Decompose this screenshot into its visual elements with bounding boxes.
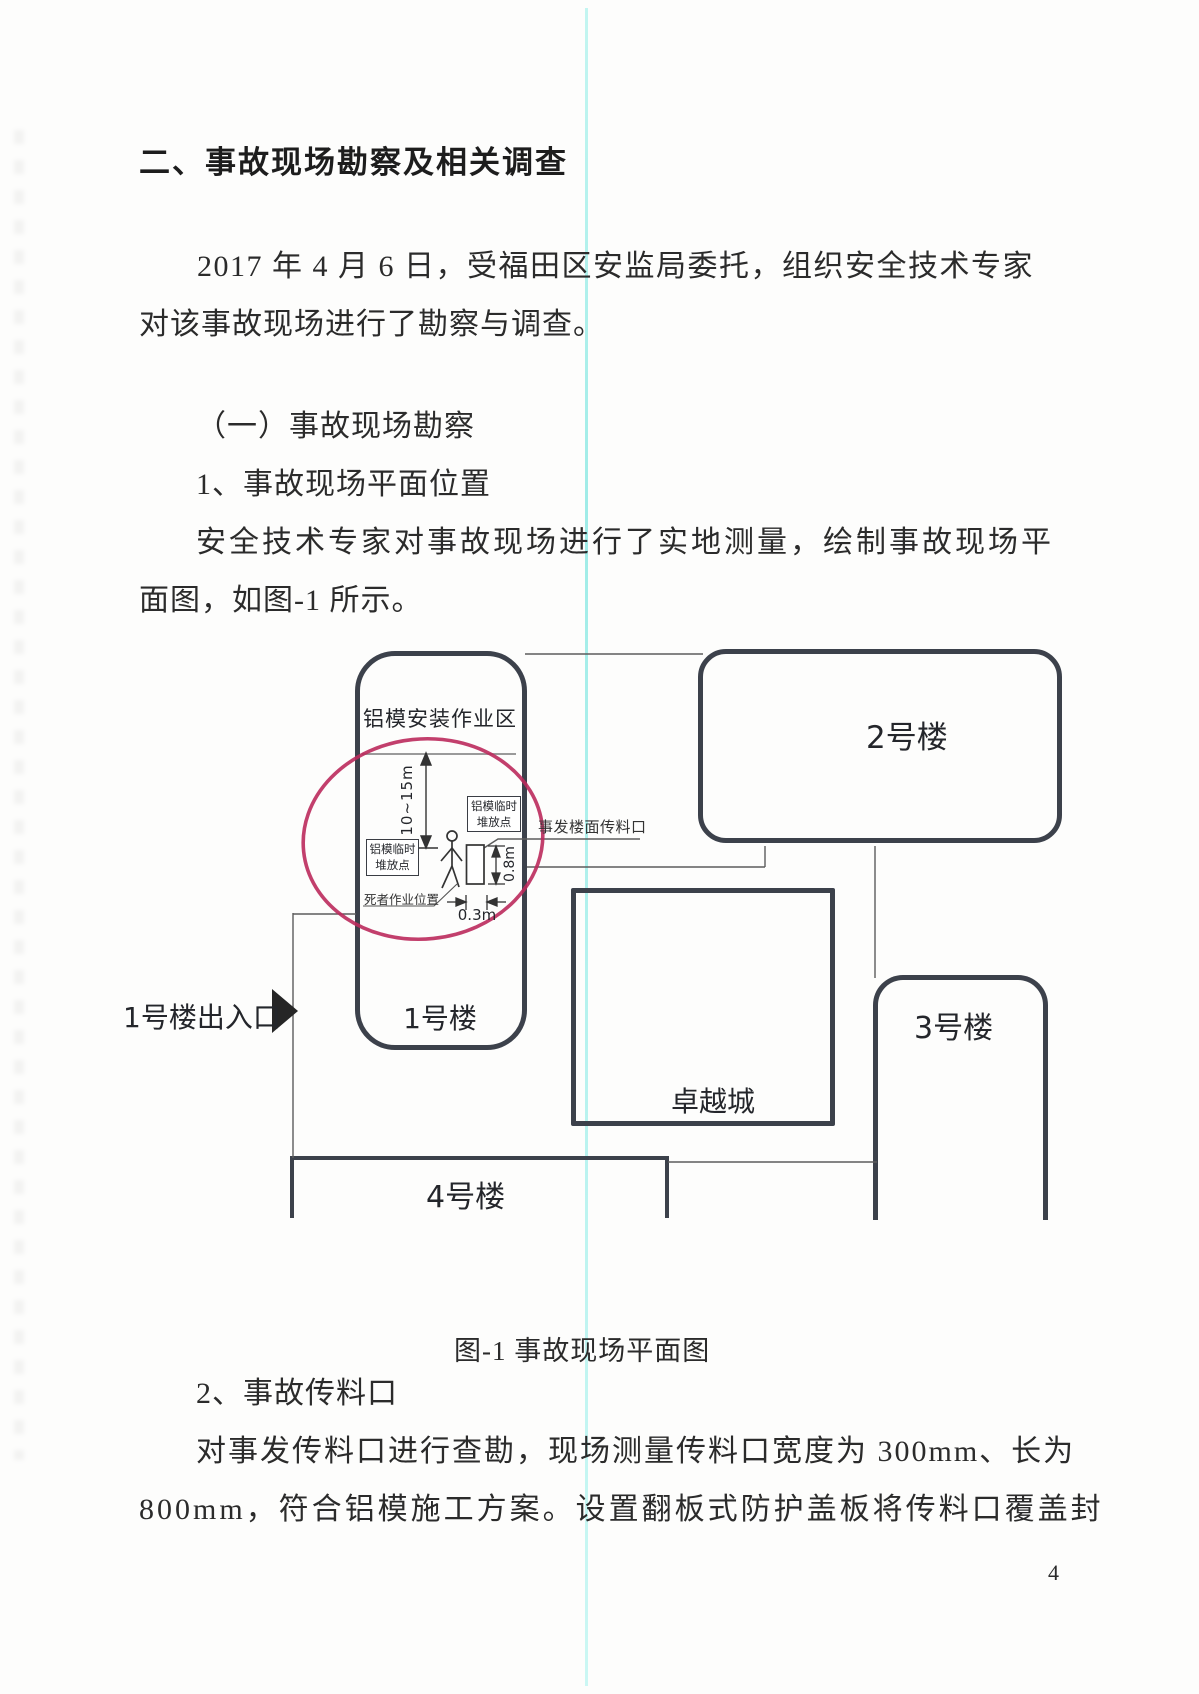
document-page: 二、事故现场勘察及相关调查 2017 年 4 月 6 日，受福田区安监局委托，组… (0, 0, 1199, 1694)
label-chute-opening: 事发楼面传料口 (538, 816, 647, 837)
paragraph3-line1: 对事发传料口进行查勘，现场测量传料口宽度为 300mm、长为 (196, 1435, 1075, 1470)
label-aluminium-form-zone: 铝模安装作业区 (357, 703, 523, 733)
label-building-2: 2号楼 (866, 712, 948, 757)
left-edge-scan-artifact (14, 130, 24, 1460)
figure-caption: 图-1 事故现场平面图 (454, 1336, 710, 1367)
subheading-plan-position: 1、事故现场平面位置 (196, 468, 491, 503)
paragraph1-line2: 对该事故现场进行了勘察与调查。 (139, 308, 604, 343)
label-zhuoyue-city: 卓越城 (671, 1080, 755, 1120)
paragraph1-line1: 2017 年 4 月 6 日，受福田区安监局委托，组织安全技术专家 (197, 250, 1034, 285)
dimension-opening-width-text: 0.3m (458, 906, 496, 924)
subheading-survey: （一）事故现场勘察 (196, 410, 475, 445)
subheading-chute: 2、事故传料口 (196, 1377, 398, 1412)
paragraph3-line2: 800mm，符合铝模施工方案。设置翻板式防护盖板将传料口覆盖封 (139, 1493, 1104, 1528)
dimension-opening-length-text: 0.8m (502, 846, 518, 882)
label-building-3: 3号楼 (914, 1003, 993, 1047)
label-building-4: 4号楼 (426, 1172, 505, 1216)
paragraph2-line1: 安全技术专家对事故现场进行了实地测量，绘制事故现场平 (196, 526, 1054, 561)
label-victim-position: 死者作业位置 (364, 889, 439, 908)
label-building-1-entrance: 1号楼出入口 (123, 996, 281, 1036)
section-heading: 二、事故现场勘察及相关调查 (139, 146, 568, 182)
stack-point-box-lower: 铝模临时 堆放点 (366, 839, 419, 876)
paragraph2-line2: 面图，如图-1 所示。 (139, 584, 423, 619)
label-building-1: 1号楼 (357, 997, 523, 1037)
stack-point-box-upper: 铝模临时 堆放点 (467, 796, 521, 832)
page-number: 4 (1048, 1560, 1059, 1585)
dimension-drop-height-text: 10~15m (398, 764, 416, 835)
